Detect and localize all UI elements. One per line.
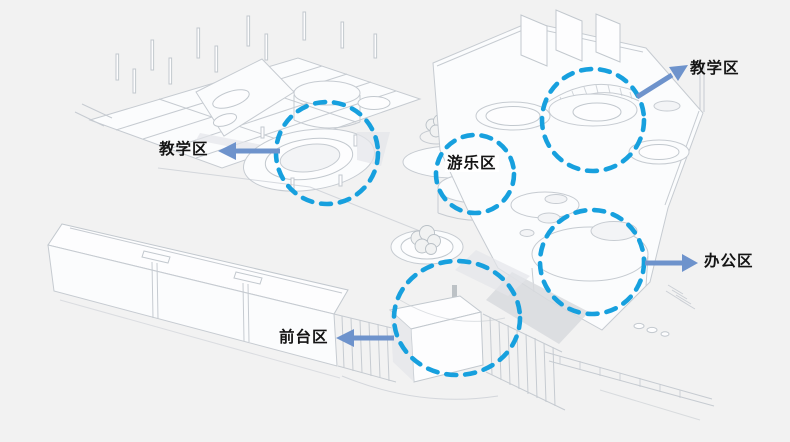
play-circle bbox=[436, 135, 514, 213]
zone-label-teaching-left: 教学区 bbox=[159, 141, 209, 158]
teaching-left-zone-marker bbox=[218, 102, 378, 204]
play-zone-marker bbox=[436, 135, 514, 213]
architectural-diagram: 教学区 教学区 游乐区 办公区 前台区 bbox=[0, 0, 790, 442]
teaching-right-arrow bbox=[637, 65, 688, 97]
zone-label-play: 游乐区 bbox=[445, 155, 499, 172]
teaching-left-arrow bbox=[218, 142, 280, 160]
reception-zone-marker bbox=[336, 261, 520, 375]
teaching-left-circle bbox=[276, 102, 378, 204]
teaching-right-zone-marker bbox=[542, 65, 688, 171]
zone-label-office: 办公区 bbox=[704, 253, 754, 270]
reception-circle bbox=[394, 261, 520, 375]
teaching-right-circle bbox=[542, 69, 644, 171]
zone-label-teaching-right: 教学区 bbox=[690, 60, 740, 77]
office-circle bbox=[540, 210, 644, 314]
office-zone-marker bbox=[540, 210, 698, 314]
zone-label-reception: 前台区 bbox=[279, 329, 329, 346]
office-arrow bbox=[645, 254, 698, 272]
zone-annotations bbox=[0, 0, 790, 442]
reception-arrow bbox=[336, 329, 394, 347]
